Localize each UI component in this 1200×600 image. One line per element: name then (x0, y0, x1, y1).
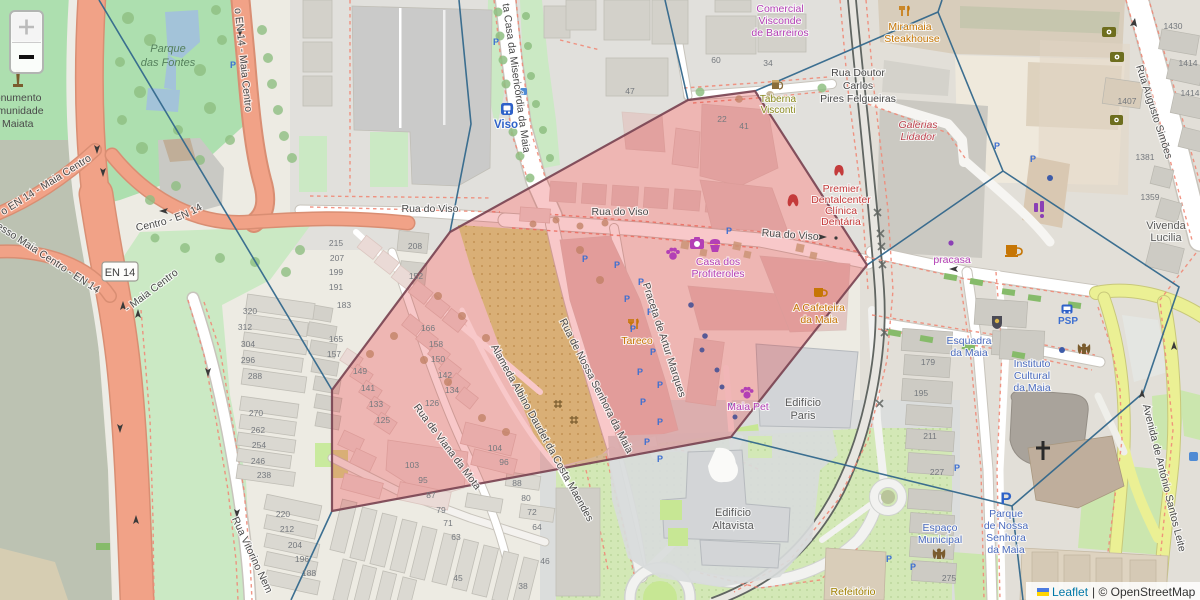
svg-text:34: 34 (763, 58, 773, 68)
svg-text:Senhora: Senhora (986, 532, 1026, 544)
svg-text:Refeitório: Refeitório (831, 586, 876, 598)
svg-text:da Maia: da Maia (800, 314, 838, 326)
svg-text:P: P (657, 417, 663, 427)
svg-text:Paris: Paris (790, 410, 816, 422)
svg-text:157: 157 (327, 349, 341, 359)
svg-text:P: P (910, 562, 916, 572)
svg-text:da Maia: da Maia (1013, 382, 1051, 394)
svg-text:46: 46 (540, 556, 550, 566)
svg-text:275: 275 (942, 573, 956, 583)
svg-text:Rua Doutor: Rua Doutor (831, 67, 885, 79)
svg-text:Leaflet: Leaflet (1052, 585, 1089, 599)
svg-text:Profiteroles: Profiteroles (691, 268, 744, 280)
svg-text:288: 288 (248, 371, 262, 381)
svg-text:Rua do Viso: Rua do Viso (591, 206, 648, 218)
svg-text:Cultural: Cultural (1014, 370, 1050, 382)
svg-text:96: 96 (499, 457, 509, 467)
svg-text:P: P (614, 260, 620, 270)
svg-text:188: 188 (302, 568, 316, 578)
svg-text:207: 207 (330, 253, 344, 263)
svg-text:296: 296 (241, 355, 255, 365)
svg-text:47: 47 (625, 86, 635, 96)
svg-text:Comercial: Comercial (756, 3, 803, 15)
svg-text:Tareco: Tareco (621, 335, 653, 347)
svg-text:Casa dos: Casa dos (696, 256, 740, 268)
svg-text:Taberna: Taberna (760, 94, 797, 105)
svg-text:Esquadra: Esquadra (947, 335, 992, 347)
svg-text:133: 133 (369, 399, 383, 409)
svg-text:220: 220 (276, 509, 290, 519)
svg-text:Edifício: Edifício (785, 397, 821, 409)
svg-text:150: 150 (431, 354, 445, 364)
svg-text:Municipal: Municipal (918, 534, 962, 546)
svg-text:1430: 1430 (1164, 21, 1183, 31)
svg-text:P: P (726, 226, 732, 236)
svg-text:80: 80 (521, 493, 531, 503)
svg-text:EN 14: EN 14 (105, 267, 136, 279)
svg-text:P: P (657, 380, 663, 390)
svg-text:320: 320 (243, 306, 257, 316)
svg-text:38: 38 (518, 581, 528, 591)
svg-text:de Barreiros: de Barreiros (751, 27, 808, 39)
svg-text:das Fontes: das Fontes (141, 57, 196, 69)
svg-text:PSP: PSP (1058, 316, 1078, 327)
svg-text:1407: 1407 (1118, 96, 1137, 106)
svg-text:P: P (640, 397, 646, 407)
svg-text:P: P (644, 437, 650, 447)
svg-text:Galerias: Galerias (898, 119, 938, 131)
svg-text:P: P (624, 294, 630, 304)
svg-text:Rua do Viso: Rua do Viso (401, 203, 458, 215)
svg-text:64: 64 (532, 522, 542, 532)
svg-text:P: P (994, 141, 1000, 151)
svg-text:179: 179 (921, 357, 935, 367)
svg-text:72: 72 (527, 507, 537, 517)
svg-text:88: 88 (512, 478, 522, 488)
svg-text:Edifício: Edifício (715, 507, 751, 519)
svg-text:Carlos: Carlos (843, 80, 873, 92)
svg-text:165: 165 (329, 334, 343, 344)
svg-text:238: 238 (257, 470, 271, 480)
svg-text:Maia Pet: Maia Pet (727, 401, 769, 413)
svg-text:P: P (954, 463, 960, 473)
svg-text:104: 104 (488, 443, 502, 453)
svg-text:262: 262 (251, 425, 265, 435)
svg-text:Espaço: Espaço (922, 522, 957, 534)
svg-text:87: 87 (426, 490, 436, 500)
svg-text:199: 199 (329, 267, 343, 277)
svg-text:P: P (1000, 489, 1011, 508)
svg-text:Monumento: Monumento (0, 92, 42, 104)
svg-text:de Nossa: de Nossa (984, 520, 1029, 532)
svg-text:P: P (582, 254, 588, 264)
svg-text:45: 45 (453, 573, 463, 583)
svg-text:215: 215 (329, 238, 343, 248)
svg-text:P: P (650, 347, 656, 357)
svg-text:60: 60 (711, 55, 721, 65)
svg-text:1414: 1414 (1181, 88, 1200, 98)
svg-text:208: 208 (408, 241, 422, 251)
svg-text:304: 304 (241, 339, 255, 349)
svg-text:Instituto: Instituto (1014, 358, 1051, 370)
svg-text:183: 183 (337, 300, 351, 310)
svg-text:312: 312 (238, 322, 252, 332)
svg-text:P: P (493, 37, 499, 47)
svg-text:P: P (657, 454, 663, 464)
svg-text:41: 41 (739, 121, 749, 131)
svg-text:95: 95 (418, 475, 428, 485)
svg-text:A Cafeteira: A Cafeteira (793, 302, 845, 314)
svg-text:P: P (637, 367, 643, 377)
svg-text:Pires Felgueiras: Pires Felgueiras (820, 93, 896, 105)
svg-text:P: P (886, 554, 892, 564)
svg-text:204: 204 (288, 540, 302, 550)
svg-text:Parque: Parque (150, 43, 185, 55)
svg-text:Maiata: Maiata (2, 118, 34, 130)
svg-text:da Maia: da Maia (987, 544, 1025, 556)
svg-text:191: 191 (329, 282, 343, 292)
svg-text:125: 125 (376, 415, 390, 425)
svg-text:142: 142 (438, 370, 452, 380)
svg-text:Parque: Parque (989, 508, 1023, 520)
svg-text:270: 270 (249, 408, 263, 418)
svg-text:246: 246 (251, 456, 265, 466)
svg-text:Visconti: Visconti (761, 105, 796, 116)
svg-text:1381: 1381 (1136, 152, 1155, 162)
svg-text:211: 211 (923, 431, 937, 441)
svg-text:P: P (630, 324, 636, 334)
svg-text:| © OpenStreetMap: | © OpenStreetMap (1092, 585, 1196, 599)
svg-text:1359: 1359 (1141, 192, 1160, 202)
svg-text:158: 158 (429, 339, 443, 349)
svg-text:1414: 1414 (1179, 58, 1198, 68)
svg-text:Steakhouse: Steakhouse (884, 33, 940, 45)
svg-text:227: 227 (930, 467, 944, 477)
svg-text:pracasa: pracasa (933, 254, 971, 266)
svg-text:149: 149 (353, 366, 367, 376)
svg-text:Comunidade: Comunidade (0, 105, 44, 117)
svg-text:Visconde: Visconde (758, 15, 801, 27)
svg-text:152: 152 (409, 271, 423, 281)
svg-text:da Maia: da Maia (950, 347, 988, 359)
svg-text:Lidador: Lidador (900, 131, 936, 143)
svg-text:126: 126 (425, 398, 439, 408)
svg-text:P: P (230, 60, 236, 70)
svg-text:63: 63 (451, 532, 461, 542)
svg-text:Viso: Viso (494, 119, 518, 131)
svg-text:79: 79 (436, 505, 446, 515)
svg-text:71: 71 (443, 518, 453, 528)
svg-text:212: 212 (280, 524, 294, 534)
svg-text:166: 166 (421, 323, 435, 333)
svg-text:22: 22 (717, 114, 727, 124)
svg-text:Lucilia: Lucilia (1150, 232, 1182, 244)
svg-text:Altavista: Altavista (712, 520, 754, 532)
svg-text:134: 134 (445, 385, 459, 395)
svg-text:103: 103 (405, 460, 419, 470)
svg-text:254: 254 (252, 440, 266, 450)
svg-text:Miramaia: Miramaia (888, 21, 931, 33)
svg-text:141: 141 (361, 383, 375, 393)
svg-text:Dentária: Dentária (821, 216, 861, 228)
svg-text:196: 196 (295, 554, 309, 564)
svg-text:Vivenda: Vivenda (1146, 220, 1186, 232)
svg-text:P: P (1030, 154, 1036, 164)
svg-text:195: 195 (914, 388, 928, 398)
